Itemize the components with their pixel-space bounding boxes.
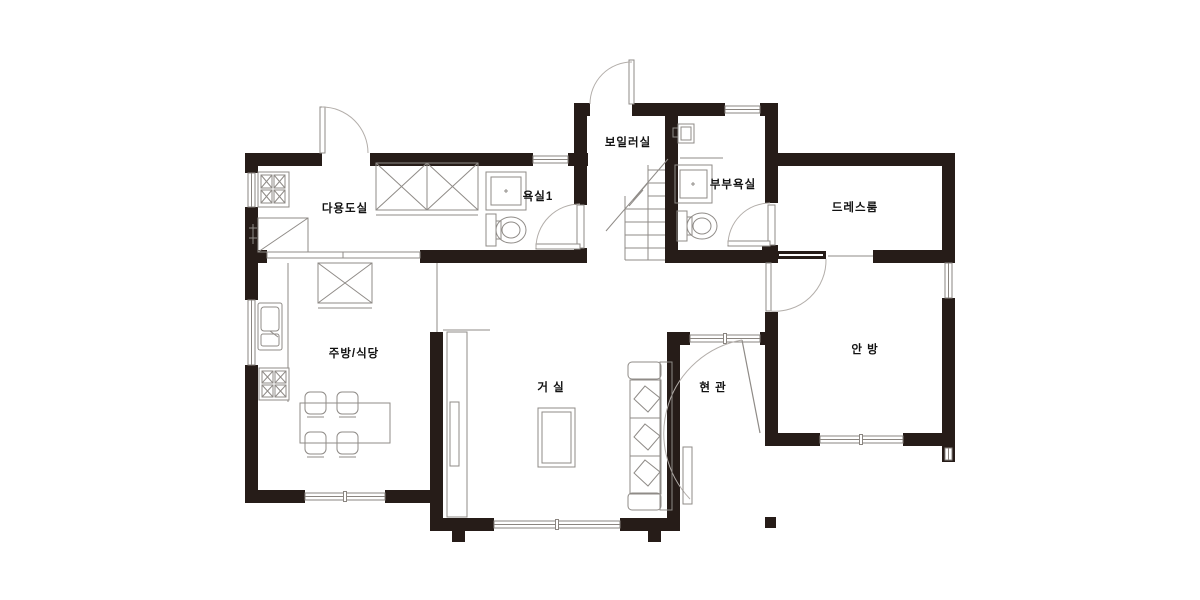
label-boiler: 보일러실 (605, 135, 651, 149)
sliding-door-icon-utility-kitchen (267, 252, 420, 258)
windows (248, 106, 952, 530)
label-dressroom: 드레스룸 (832, 200, 878, 214)
label-master-bath: 부부욕실 (710, 177, 756, 191)
window-icon (945, 263, 952, 298)
window-icon (248, 173, 255, 207)
dining-table-icon (300, 392, 390, 457)
corner-cabinet-icon (249, 218, 308, 252)
tv-console-icon (447, 332, 467, 517)
pantry-cabinet-icon (318, 263, 372, 308)
label-utility: 다용도실 (322, 201, 368, 215)
window-icon (945, 448, 952, 460)
shower-booth-icon (486, 172, 526, 210)
window-icon (690, 334, 760, 344)
window-icon (305, 492, 385, 502)
door-icon-bath1 (536, 204, 584, 249)
window-icon (248, 300, 255, 365)
window-icon (725, 106, 760, 113)
gas-stove-icon (259, 368, 289, 400)
room-entrance (683, 447, 692, 504)
room-kitchen (258, 263, 390, 457)
window-icon (494, 520, 620, 530)
label-kitchen-dining: 주방/식당 (329, 346, 380, 360)
toilet-icon (677, 211, 717, 241)
door-icon-master-bath (728, 203, 775, 246)
window-icon (820, 435, 903, 445)
room-bath1 (486, 172, 526, 246)
label-entrance: 현 관 (699, 380, 726, 394)
door-icon-boiler (590, 60, 634, 104)
room-living (447, 332, 672, 517)
label-bath1: 욕실1 (523, 189, 554, 203)
label-master-bedroom: 안 방 (851, 342, 878, 356)
room-boiler-stairs (606, 159, 668, 260)
door-icon-utility (320, 107, 368, 153)
door-icon-master-bedroom (766, 251, 873, 311)
kitchen-sink-icon (258, 303, 282, 350)
floor-plan-svg: 다용도실 욕실1 보일러실 부부욕실 드레스룸 주방/식당 거 실 현 관 안 … (0, 0, 1200, 600)
toilet-icon (486, 214, 526, 246)
walls (245, 103, 955, 542)
stairs-icon (606, 159, 668, 260)
laundry-cabinet-icon (376, 163, 478, 215)
window-icon (533, 156, 568, 163)
floor-plan: 다용도실 욕실1 보일러실 부부욕실 드레스룸 주방/식당 거 실 현 관 안 … (0, 0, 1200, 600)
coffee-table-icon (538, 408, 575, 467)
shower-booth-icon (675, 165, 712, 203)
gas-stove-icon (258, 172, 289, 207)
shoe-cabinet-icon (683, 447, 692, 504)
sofa-icon (628, 362, 672, 510)
room-labels: 다용도실 욕실1 보일러실 부부욕실 드레스룸 주방/식당 거 실 현 관 안 … (322, 135, 879, 394)
label-living: 거 실 (537, 380, 564, 394)
